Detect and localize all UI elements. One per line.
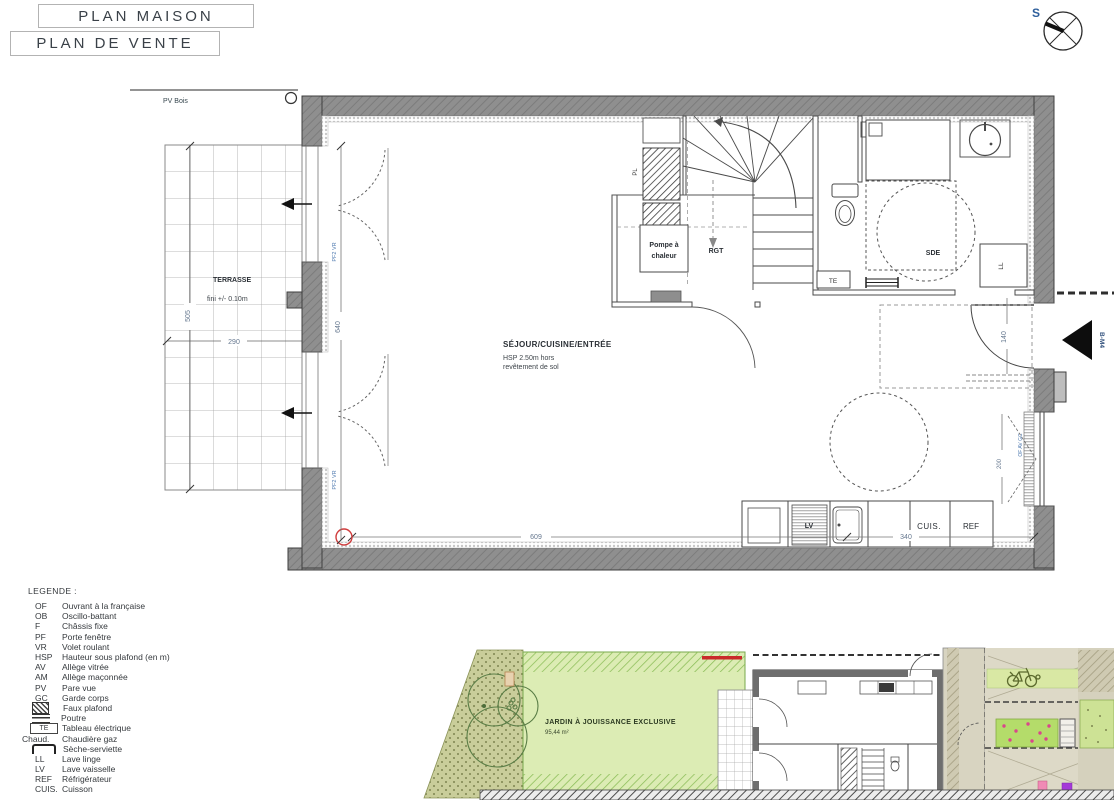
- legend-label: Châssis fixe: [62, 621, 108, 631]
- legend-key: CUIS.: [35, 784, 62, 794]
- sejour-note-2: revêtement de sol: [503, 364, 559, 371]
- sde-room: [817, 120, 1027, 288]
- roller-shutter: [1024, 412, 1034, 506]
- legend-label: Cuisson: [62, 784, 93, 794]
- legend-label: Allège maçonnée: [62, 672, 128, 682]
- legend-key: HSP: [35, 652, 62, 662]
- site-terrace-tiles: [718, 690, 753, 792]
- toilet-tank: [832, 184, 858, 197]
- poutre-beam-icon: [32, 714, 50, 723]
- entry-marker-label: B-M4: [1098, 332, 1105, 348]
- toilet-icon: [836, 201, 855, 226]
- legend-key: OB: [35, 611, 62, 621]
- sejour-note-1: HSP 2.50m hors: [503, 355, 555, 362]
- te-box-icon: TE: [30, 723, 58, 734]
- turning-circle-dashed: [830, 393, 928, 491]
- legend-key: AV: [35, 662, 62, 672]
- legend-item-faux-plafond: Faux plafond: [28, 703, 238, 713]
- legend-label: Oscillo-battant: [62, 611, 116, 621]
- legend-label: Tableau électrique: [62, 723, 131, 733]
- sejour-room: SÉJOUR/CUISINE/ENTRÉE HSP 2.50m hors rev…: [503, 340, 928, 491]
- legend-key: AM: [35, 672, 62, 682]
- legend-label: Garde corps: [62, 693, 109, 703]
- dim-window-width: 200: [997, 458, 1003, 469]
- dim-entry-width: 140: [1001, 331, 1008, 343]
- legend-item-cuis: CUIS.Cuisson: [28, 784, 238, 794]
- towel-radiator-icon: [866, 277, 898, 288]
- dimension-lines: 609 340 640: [335, 142, 1038, 545]
- pl-label: PL: [633, 168, 639, 176]
- legend-label: Porte fenêtre: [62, 632, 111, 642]
- pompe-a-chaleur-zone: PL Pompe à chaleur RGT: [633, 118, 755, 368]
- legend-item-ref: REFRéfrigérateur: [28, 774, 238, 784]
- garden-label: JARDIN À JOUISSANCE EXCLUSIVE: [545, 717, 676, 726]
- site-house: [753, 654, 943, 800]
- right-window: [997, 412, 1054, 506]
- sde-label: SDE: [926, 250, 941, 257]
- legend-key: F: [35, 621, 62, 631]
- legend-key: LV: [35, 764, 62, 774]
- legend-item-of: OFOuvrant à la française: [28, 601, 238, 611]
- legend-item-te: TETableau électrique: [28, 723, 238, 733]
- legend-item-gc: GCGarde corps: [28, 693, 238, 703]
- door-left-tag-1: PF2 VR: [332, 242, 338, 261]
- pompe-label-line2: chaleur: [652, 253, 677, 260]
- kitchen-counter: [742, 501, 993, 547]
- dim-terrasse-height: 505: [185, 310, 192, 322]
- te-label: TE: [829, 278, 838, 285]
- door-left-tag-2: PF2 VR: [332, 470, 338, 489]
- red-boundary-line: [702, 656, 742, 660]
- pv-bois-fence: PV Bois: [130, 90, 298, 105]
- faux-plafond-hatch: [643, 203, 680, 225]
- legend-title: LEGENDE :: [28, 586, 238, 596]
- pompe-label-line1: Pompe à: [649, 242, 678, 249]
- legend-item-pv: PVPare vue: [28, 683, 238, 693]
- legend-item-lv: LVLave vaisselle: [28, 764, 238, 774]
- legend-item-seche-serviette: Sèche-serviette: [28, 744, 238, 754]
- ref-label: REF: [963, 522, 979, 531]
- terrasse: TERRASSE fini +/- 0.10m 505 290: [163, 142, 312, 493]
- garden-bench: [505, 672, 514, 686]
- legend-label: Allège vitrée: [62, 662, 109, 672]
- legend-item-ob: OBOscillo-battant: [28, 611, 238, 621]
- sejour-label: SÉJOUR/CUISINE/ENTRÉE: [503, 340, 612, 349]
- legend-label: Chaudière gaz: [62, 734, 117, 744]
- compass-icon: S: [1032, 6, 1082, 50]
- dim-kitchen-run: 340: [900, 534, 912, 541]
- legend-item-pf: PFPorte fenêtre: [28, 632, 238, 642]
- entry-door: [880, 298, 1054, 388]
- shower-tray: [866, 120, 950, 180]
- ll-label: LL: [998, 262, 1005, 270]
- legend-label: Poutre: [61, 713, 86, 723]
- legend-item-poutre: Poutre: [28, 713, 238, 723]
- legend-key: OF: [35, 601, 62, 611]
- shower-zone-dashed: [866, 181, 956, 270]
- pv-bois-label: PV Bois: [163, 98, 188, 105]
- legend-item-f: FChâssis fixe: [28, 621, 238, 631]
- legend-label: Volet roulant: [62, 642, 109, 652]
- legend-item-hsp: HSPHauteur sous plafond (en m): [28, 652, 238, 662]
- legend-label: Faux plafond: [63, 703, 112, 713]
- site-plan: JARDIN À JOUISSANCE EXCLUSIVE 95,44 m²: [424, 648, 1114, 800]
- legend-label: Réfrigérateur: [62, 774, 112, 784]
- legend-label: Pare vue: [62, 683, 96, 693]
- seche-serviette-icon: [32, 744, 56, 754]
- legend-label: Lave linge: [62, 754, 101, 764]
- legend-item-ll: LLLave linge: [28, 754, 238, 764]
- fence-post-icon: [286, 93, 297, 104]
- terrasse-label: TERRASSE: [213, 277, 251, 284]
- lv-label: LV: [805, 523, 814, 530]
- dim-terrasse-width: 290: [228, 339, 240, 346]
- legend-key: PF: [35, 632, 62, 642]
- terrasse-note: fini +/- 0.10m: [207, 296, 248, 303]
- compass-south-label: S: [1032, 6, 1040, 20]
- legend-item-chaud: Chaud.Chaudière gaz: [28, 733, 238, 743]
- legend-label: Sèche-serviette: [63, 744, 122, 754]
- legend-item-vr: VRVolet roulant: [28, 642, 238, 652]
- legend-label: Lave vaisselle: [62, 764, 115, 774]
- legend-label: Hauteur sous plafond (en m): [62, 652, 170, 662]
- cuis-label: CUIS.: [917, 522, 941, 531]
- faux-plafond-hatch-icon: [32, 702, 49, 714]
- legend-label: Ouvrant à la française: [62, 601, 145, 611]
- dim-interior-width: 609: [530, 534, 542, 541]
- legend-item-av: AVAllège vitrée: [28, 662, 238, 672]
- circulation-arrow-icon: [709, 238, 717, 248]
- legend-item-am: AMAllège maçonnée: [28, 672, 238, 682]
- dim-sejour-height: 640: [335, 321, 342, 333]
- faux-plafond-hatch: [643, 148, 680, 200]
- site-boundary-hatch: [480, 790, 1114, 800]
- legend-key: PV: [35, 683, 62, 693]
- garden-area-value: 95,44 m²: [545, 730, 569, 736]
- rgt-label: RGT: [709, 248, 725, 255]
- legend-key: Chaud.: [22, 734, 62, 744]
- legend: LEGENDE : OFOuvrant à la française OBOsc…: [28, 586, 238, 795]
- entry-marker-arrow-icon: [1062, 320, 1092, 360]
- legend-key: VR: [35, 642, 62, 652]
- legend-key: REF: [35, 774, 62, 784]
- legend-key: LL: [35, 754, 62, 764]
- window-right-tag: OF AV GC: [1018, 433, 1024, 457]
- turning-circle-dashed: [877, 183, 975, 281]
